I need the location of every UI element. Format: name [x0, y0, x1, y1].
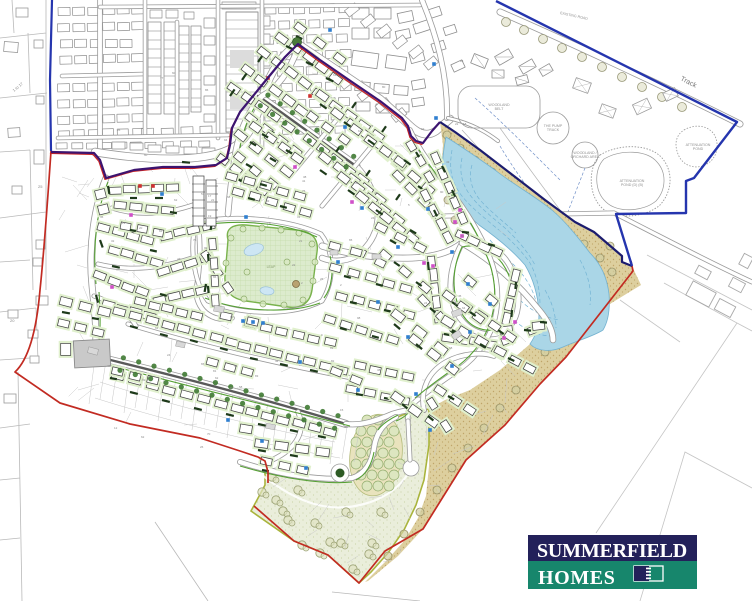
svg-text:99: 99 [204, 246, 208, 250]
svg-text:43: 43 [266, 199, 270, 203]
svg-text:15: 15 [340, 408, 344, 412]
svg-text:44: 44 [463, 336, 467, 340]
svg-text:28: 28 [460, 59, 464, 63]
svg-text:18: 18 [463, 122, 467, 126]
svg-text:38: 38 [303, 175, 307, 179]
svg-text:ORCHARD AREA: ORCHARD AREA [571, 155, 600, 159]
svg-text:42: 42 [275, 359, 279, 363]
svg-text:20: 20 [139, 226, 143, 230]
svg-text:94: 94 [224, 138, 228, 142]
svg-text:86: 86 [205, 88, 209, 92]
svg-text:22: 22 [211, 198, 215, 202]
svg-text:24: 24 [371, 216, 375, 220]
svg-text:LEAP: LEAP [267, 265, 276, 269]
svg-text:90: 90 [440, 190, 444, 194]
svg-text:31: 31 [297, 215, 301, 219]
svg-text:49: 49 [238, 396, 242, 400]
svg-text:75: 75 [370, 124, 374, 128]
svg-text:62: 62 [141, 435, 145, 439]
svg-text:TRACK: TRACK [547, 128, 560, 132]
svg-text:68: 68 [227, 195, 231, 199]
svg-text:64: 64 [455, 302, 459, 306]
svg-text:64: 64 [462, 306, 466, 310]
svg-text:62: 62 [215, 376, 219, 380]
svg-text:43: 43 [446, 160, 450, 164]
svg-text:61: 61 [358, 129, 362, 133]
svg-text:36: 36 [355, 181, 359, 185]
svg-text:89: 89 [330, 346, 334, 350]
svg-text:POND (D) (B): POND (D) (B) [621, 183, 643, 187]
svg-text:47: 47 [177, 257, 181, 261]
svg-text:86: 86 [213, 275, 217, 279]
svg-text:77: 77 [160, 76, 164, 80]
svg-text:75: 75 [302, 189, 306, 193]
svg-text:53: 53 [201, 192, 205, 196]
svg-text:76: 76 [193, 238, 197, 242]
svg-text:26: 26 [117, 128, 121, 132]
svg-text:38: 38 [377, 368, 381, 372]
svg-text:58: 58 [239, 385, 243, 389]
svg-text:22: 22 [292, 263, 296, 267]
svg-text:98: 98 [357, 316, 361, 320]
svg-text:84: 84 [159, 229, 163, 233]
svg-text:83: 83 [255, 374, 259, 378]
svg-text:24: 24 [424, 301, 428, 305]
svg-text:70: 70 [207, 432, 211, 436]
svg-text:65: 65 [349, 238, 353, 242]
svg-text:89: 89 [230, 386, 234, 390]
svg-text:POND: POND [693, 147, 704, 151]
svg-text:41: 41 [302, 179, 306, 183]
svg-text:36: 36 [100, 215, 104, 219]
svg-text:19: 19 [208, 214, 212, 218]
svg-text:80: 80 [382, 85, 386, 89]
svg-text:12: 12 [114, 426, 118, 430]
svg-text:46: 46 [234, 364, 238, 368]
svg-text:62: 62 [174, 198, 178, 202]
svg-text:BELT: BELT [495, 107, 505, 111]
svg-text:82: 82 [331, 359, 335, 363]
svg-text:SUMMERFIELD: SUMMERFIELD [537, 540, 687, 562]
svg-text:68: 68 [449, 346, 453, 350]
svg-text:63: 63 [461, 234, 465, 238]
svg-text:33: 33 [374, 191, 378, 195]
svg-text:21: 21 [299, 239, 303, 243]
svg-text:62: 62 [155, 326, 159, 330]
svg-text:69: 69 [142, 378, 146, 382]
svg-text:20: 20 [10, 318, 15, 323]
svg-text:25: 25 [38, 184, 43, 189]
svg-text:HOMES: HOMES [538, 567, 615, 589]
svg-text:45: 45 [458, 294, 462, 298]
svg-text:65: 65 [201, 362, 205, 366]
svg-text:52: 52 [451, 196, 455, 200]
svg-text:47: 47 [107, 364, 111, 368]
svg-text:48: 48 [318, 150, 322, 154]
svg-text:81: 81 [213, 369, 217, 373]
svg-text:60: 60 [172, 71, 176, 75]
svg-text:39: 39 [291, 422, 295, 426]
svg-text:10: 10 [230, 315, 234, 319]
svg-text:24: 24 [167, 353, 171, 357]
svg-text:21: 21 [439, 356, 443, 360]
svg-text:53: 53 [309, 109, 313, 113]
svg-text:26: 26 [200, 445, 204, 449]
svg-text:22: 22 [268, 447, 272, 451]
svg-text:26: 26 [320, 277, 324, 281]
svg-text:63: 63 [421, 127, 425, 131]
svg-text:89: 89 [417, 395, 421, 399]
svg-text:45: 45 [340, 368, 344, 372]
svg-text:22: 22 [455, 122, 459, 126]
svg-text:17: 17 [208, 194, 212, 198]
svg-text:50: 50 [448, 326, 452, 330]
svg-text:19: 19 [122, 221, 126, 225]
svg-text:60: 60 [144, 153, 148, 157]
svg-text:32: 32 [111, 239, 115, 243]
